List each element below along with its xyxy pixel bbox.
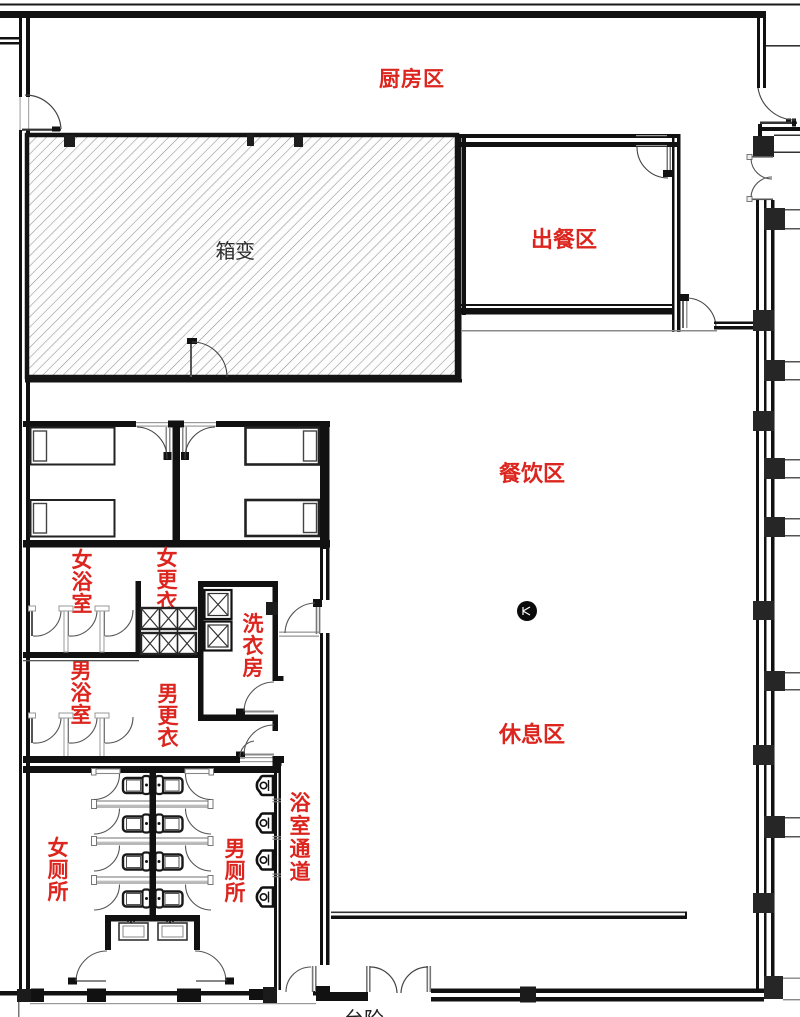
svg-text:厨房区: 厨房区 (379, 67, 445, 91)
svg-text:台阶: 台阶 (344, 1008, 384, 1017)
svg-text:餐饮区: 餐饮区 (499, 461, 565, 486)
svg-text:出餐区: 出餐区 (531, 227, 597, 252)
svg-text:女厕所: 女厕所 (48, 836, 69, 904)
svg-text:男厕所: 男厕所 (225, 838, 246, 905)
svg-text:箱变: 箱变 (216, 240, 255, 263)
svg-text:浴室通道: 浴室通道 (290, 792, 312, 884)
svg-text:男更衣: 男更衣 (158, 683, 180, 750)
svg-text:女更衣: 女更衣 (157, 546, 179, 614)
svg-text:休息区: 休息区 (498, 722, 565, 747)
svg-text:洗衣房: 洗衣房 (243, 613, 264, 680)
svg-text:女浴室: 女浴室 (72, 548, 94, 616)
svg-text:男浴室: 男浴室 (71, 660, 93, 727)
